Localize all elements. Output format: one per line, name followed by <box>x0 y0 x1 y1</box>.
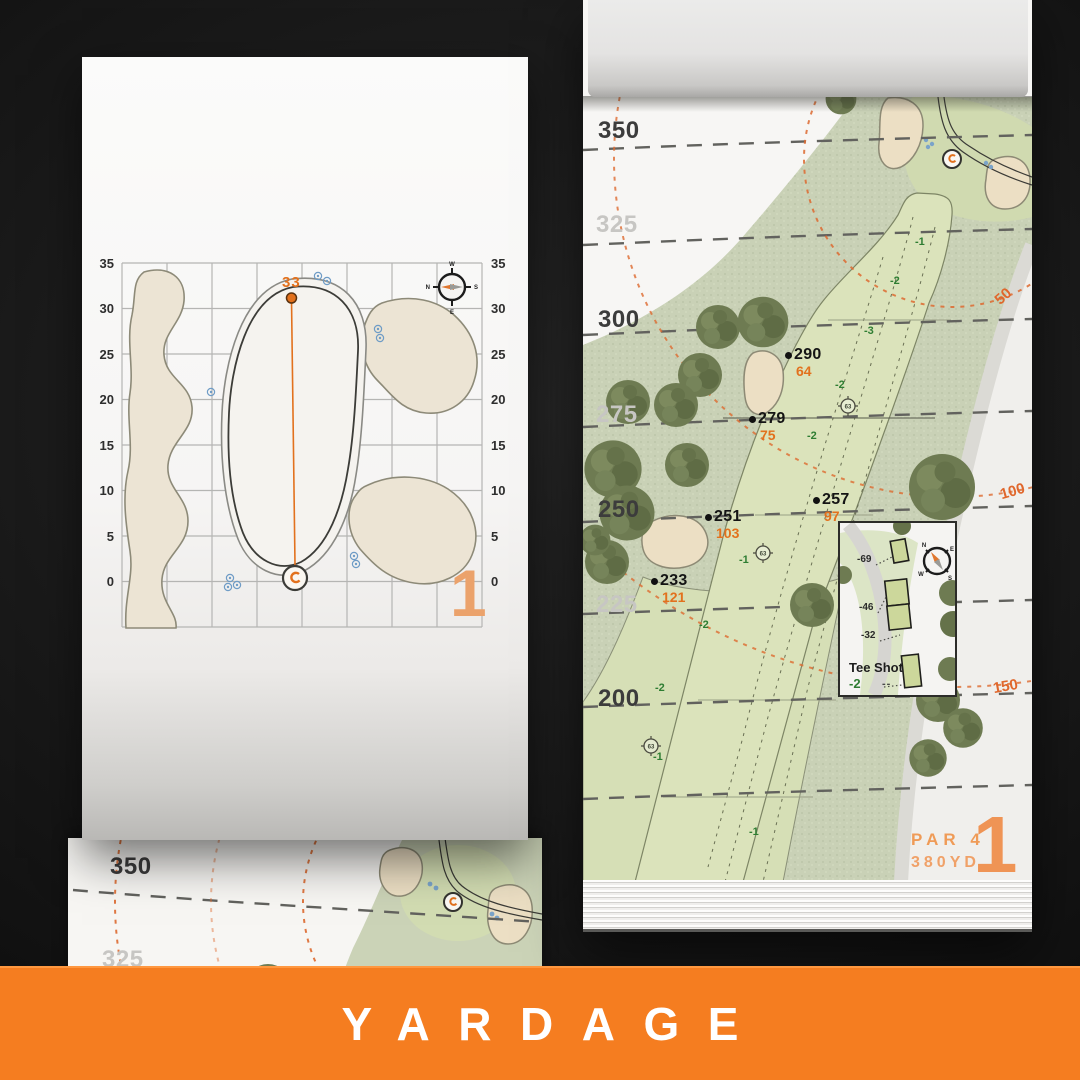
slope-number: -1 <box>739 554 749 566</box>
svg-text:E: E <box>950 547 954 553</box>
axis-left: 35 30 25 20 15 10 5 0 <box>100 256 114 589</box>
hole-map: 63 63 63 <box>583 97 1032 882</box>
depth-dot <box>287 293 297 303</box>
tee-distance--32: -32 <box>861 630 875 641</box>
hole-map-svg: 63 63 63 <box>583 97 1032 882</box>
yardage-275: 275 <box>596 401 638 429</box>
svg-text:0: 0 <box>491 574 498 589</box>
svg-text:5: 5 <box>107 529 114 544</box>
yardage-225: 225 <box>596 591 638 619</box>
green-depth-label: 33 <box>282 274 301 291</box>
yardage-book-mockup: 350 325 <box>0 0 1080 1080</box>
page-stack-edges <box>583 880 1032 932</box>
yardage-250: 250 <box>598 496 640 524</box>
svg-text:5: 5 <box>491 529 498 544</box>
tee-shot-inset: N E S W -69 -46 -32 Tee Shot -2 -- <box>838 521 957 697</box>
svg-text:0: 0 <box>107 574 114 589</box>
svg-text:35: 35 <box>100 256 114 271</box>
yardage-300: 300 <box>598 306 640 334</box>
svg-text:W: W <box>449 262 455 268</box>
svg-text:35: 35 <box>491 256 505 271</box>
svg-text:63: 63 <box>648 745 655 751</box>
bunker <box>985 157 1030 209</box>
svg-text:10: 10 <box>491 483 505 498</box>
tee-shot-title: Tee Shot <box>849 660 903 675</box>
svg-text:S: S <box>474 285 478 291</box>
hole-number: 1 <box>450 560 487 626</box>
slope-number: -2 <box>655 682 665 694</box>
svg-text:N: N <box>922 543 926 549</box>
slope-number: -2 <box>699 619 709 631</box>
under-page-yardage-350: 350 <box>110 853 152 881</box>
svg-text:W: W <box>918 572 924 578</box>
flipped-cover-sheet <box>588 0 1028 97</box>
title-banner: YARDAGE <box>0 966 1080 1080</box>
yardage-325: 325 <box>596 211 638 239</box>
svg-text:E: E <box>450 310 454 316</box>
yardage-200: 200 <box>598 685 640 713</box>
tee-dash-label: -- <box>882 678 891 690</box>
svg-text:63: 63 <box>760 552 767 558</box>
banner-title: YARDAGE <box>313 1001 767 1047</box>
svg-text:20: 20 <box>100 392 114 407</box>
inset-compass-icon: N E S W <box>918 543 954 582</box>
slope-number: -2 <box>807 430 817 442</box>
green-detail-page: 35 30 25 20 15 10 5 0 35 30 25 20 15 10 … <box>82 57 528 840</box>
yardage-350: 350 <box>598 117 640 145</box>
marker-dot <box>749 416 756 423</box>
slope-number: -1 <box>749 826 759 838</box>
pin-circle <box>943 150 961 168</box>
svg-text:25: 25 <box>491 347 505 362</box>
hole-number: 1 <box>973 805 1018 885</box>
tee-distance--46: -46 <box>859 602 873 613</box>
svg-text:10: 10 <box>100 483 114 498</box>
bunker <box>125 270 192 628</box>
slope-number: -1 <box>915 236 925 248</box>
svg-text:S: S <box>948 576 952 582</box>
marker-dot <box>705 514 712 521</box>
marker-dot <box>651 578 658 585</box>
svg-text:N: N <box>426 285 430 291</box>
svg-text:15: 15 <box>100 438 114 453</box>
pin-circle <box>444 893 462 911</box>
slope-number: -3 <box>864 325 874 337</box>
svg-text:30: 30 <box>491 301 505 316</box>
hole-map-page: 63 63 63 350 325 300 275 <box>583 0 1032 932</box>
slope-number: -2 <box>835 379 845 391</box>
bunker <box>362 299 477 414</box>
marker-dot <box>813 497 820 504</box>
slope-number: -1 <box>653 751 663 763</box>
slope-number: -2 <box>890 275 900 287</box>
svg-text:25: 25 <box>100 347 114 362</box>
pin-circle <box>283 566 307 590</box>
page-curl-shadow <box>583 96 1032 112</box>
svg-text:20: 20 <box>491 392 505 407</box>
green-detail-map: 35 30 25 20 15 10 5 0 35 30 25 20 15 10 … <box>82 57 528 840</box>
svg-text:30: 30 <box>100 301 114 316</box>
tee-elevation: -2 <box>849 676 861 691</box>
axis-right: 35 30 25 20 15 10 5 0 <box>491 256 505 589</box>
svg-text:63: 63 <box>845 405 852 411</box>
marker-dot <box>785 352 792 359</box>
tee-distance--69: -69 <box>857 554 871 565</box>
svg-text:15: 15 <box>491 438 505 453</box>
